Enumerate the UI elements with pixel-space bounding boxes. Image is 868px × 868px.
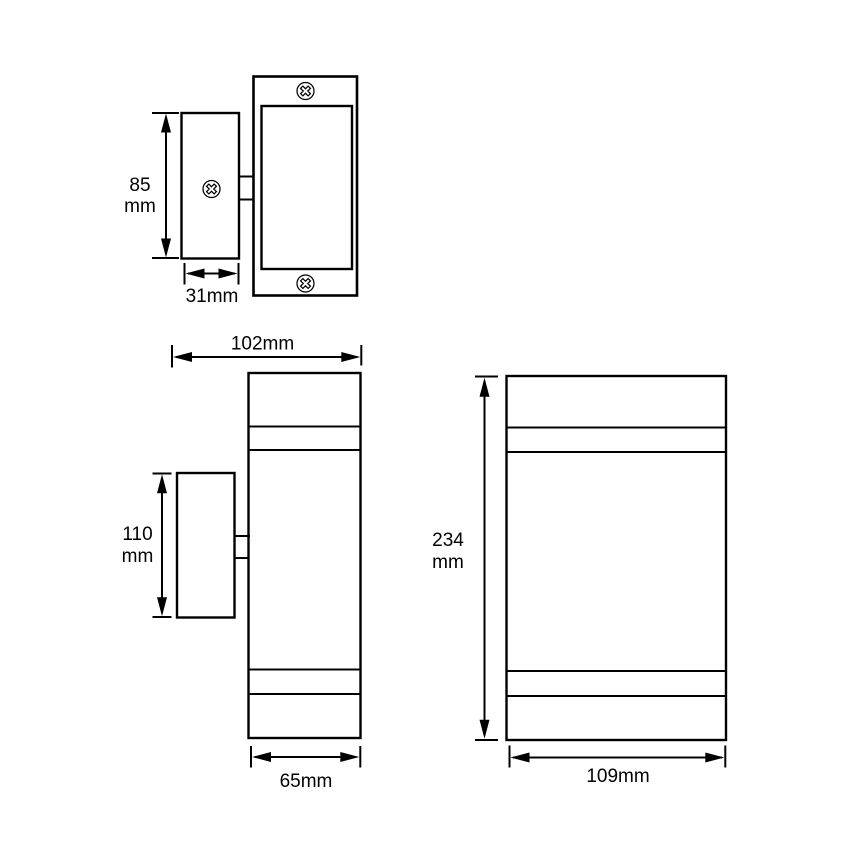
svg-text:110: 110 xyxy=(122,524,152,545)
svg-text:mm: mm xyxy=(432,552,464,573)
svg-text:234: 234 xyxy=(432,530,464,551)
svg-text:85: 85 xyxy=(129,175,150,196)
svg-text:mm: mm xyxy=(124,196,156,217)
svg-text:mm: mm xyxy=(122,546,154,567)
svg-text:31mm: 31mm xyxy=(186,286,239,307)
svg-text:102mm: 102mm xyxy=(231,334,294,355)
svg-text:109mm: 109mm xyxy=(586,766,649,787)
svg-text:65mm: 65mm xyxy=(280,771,333,792)
